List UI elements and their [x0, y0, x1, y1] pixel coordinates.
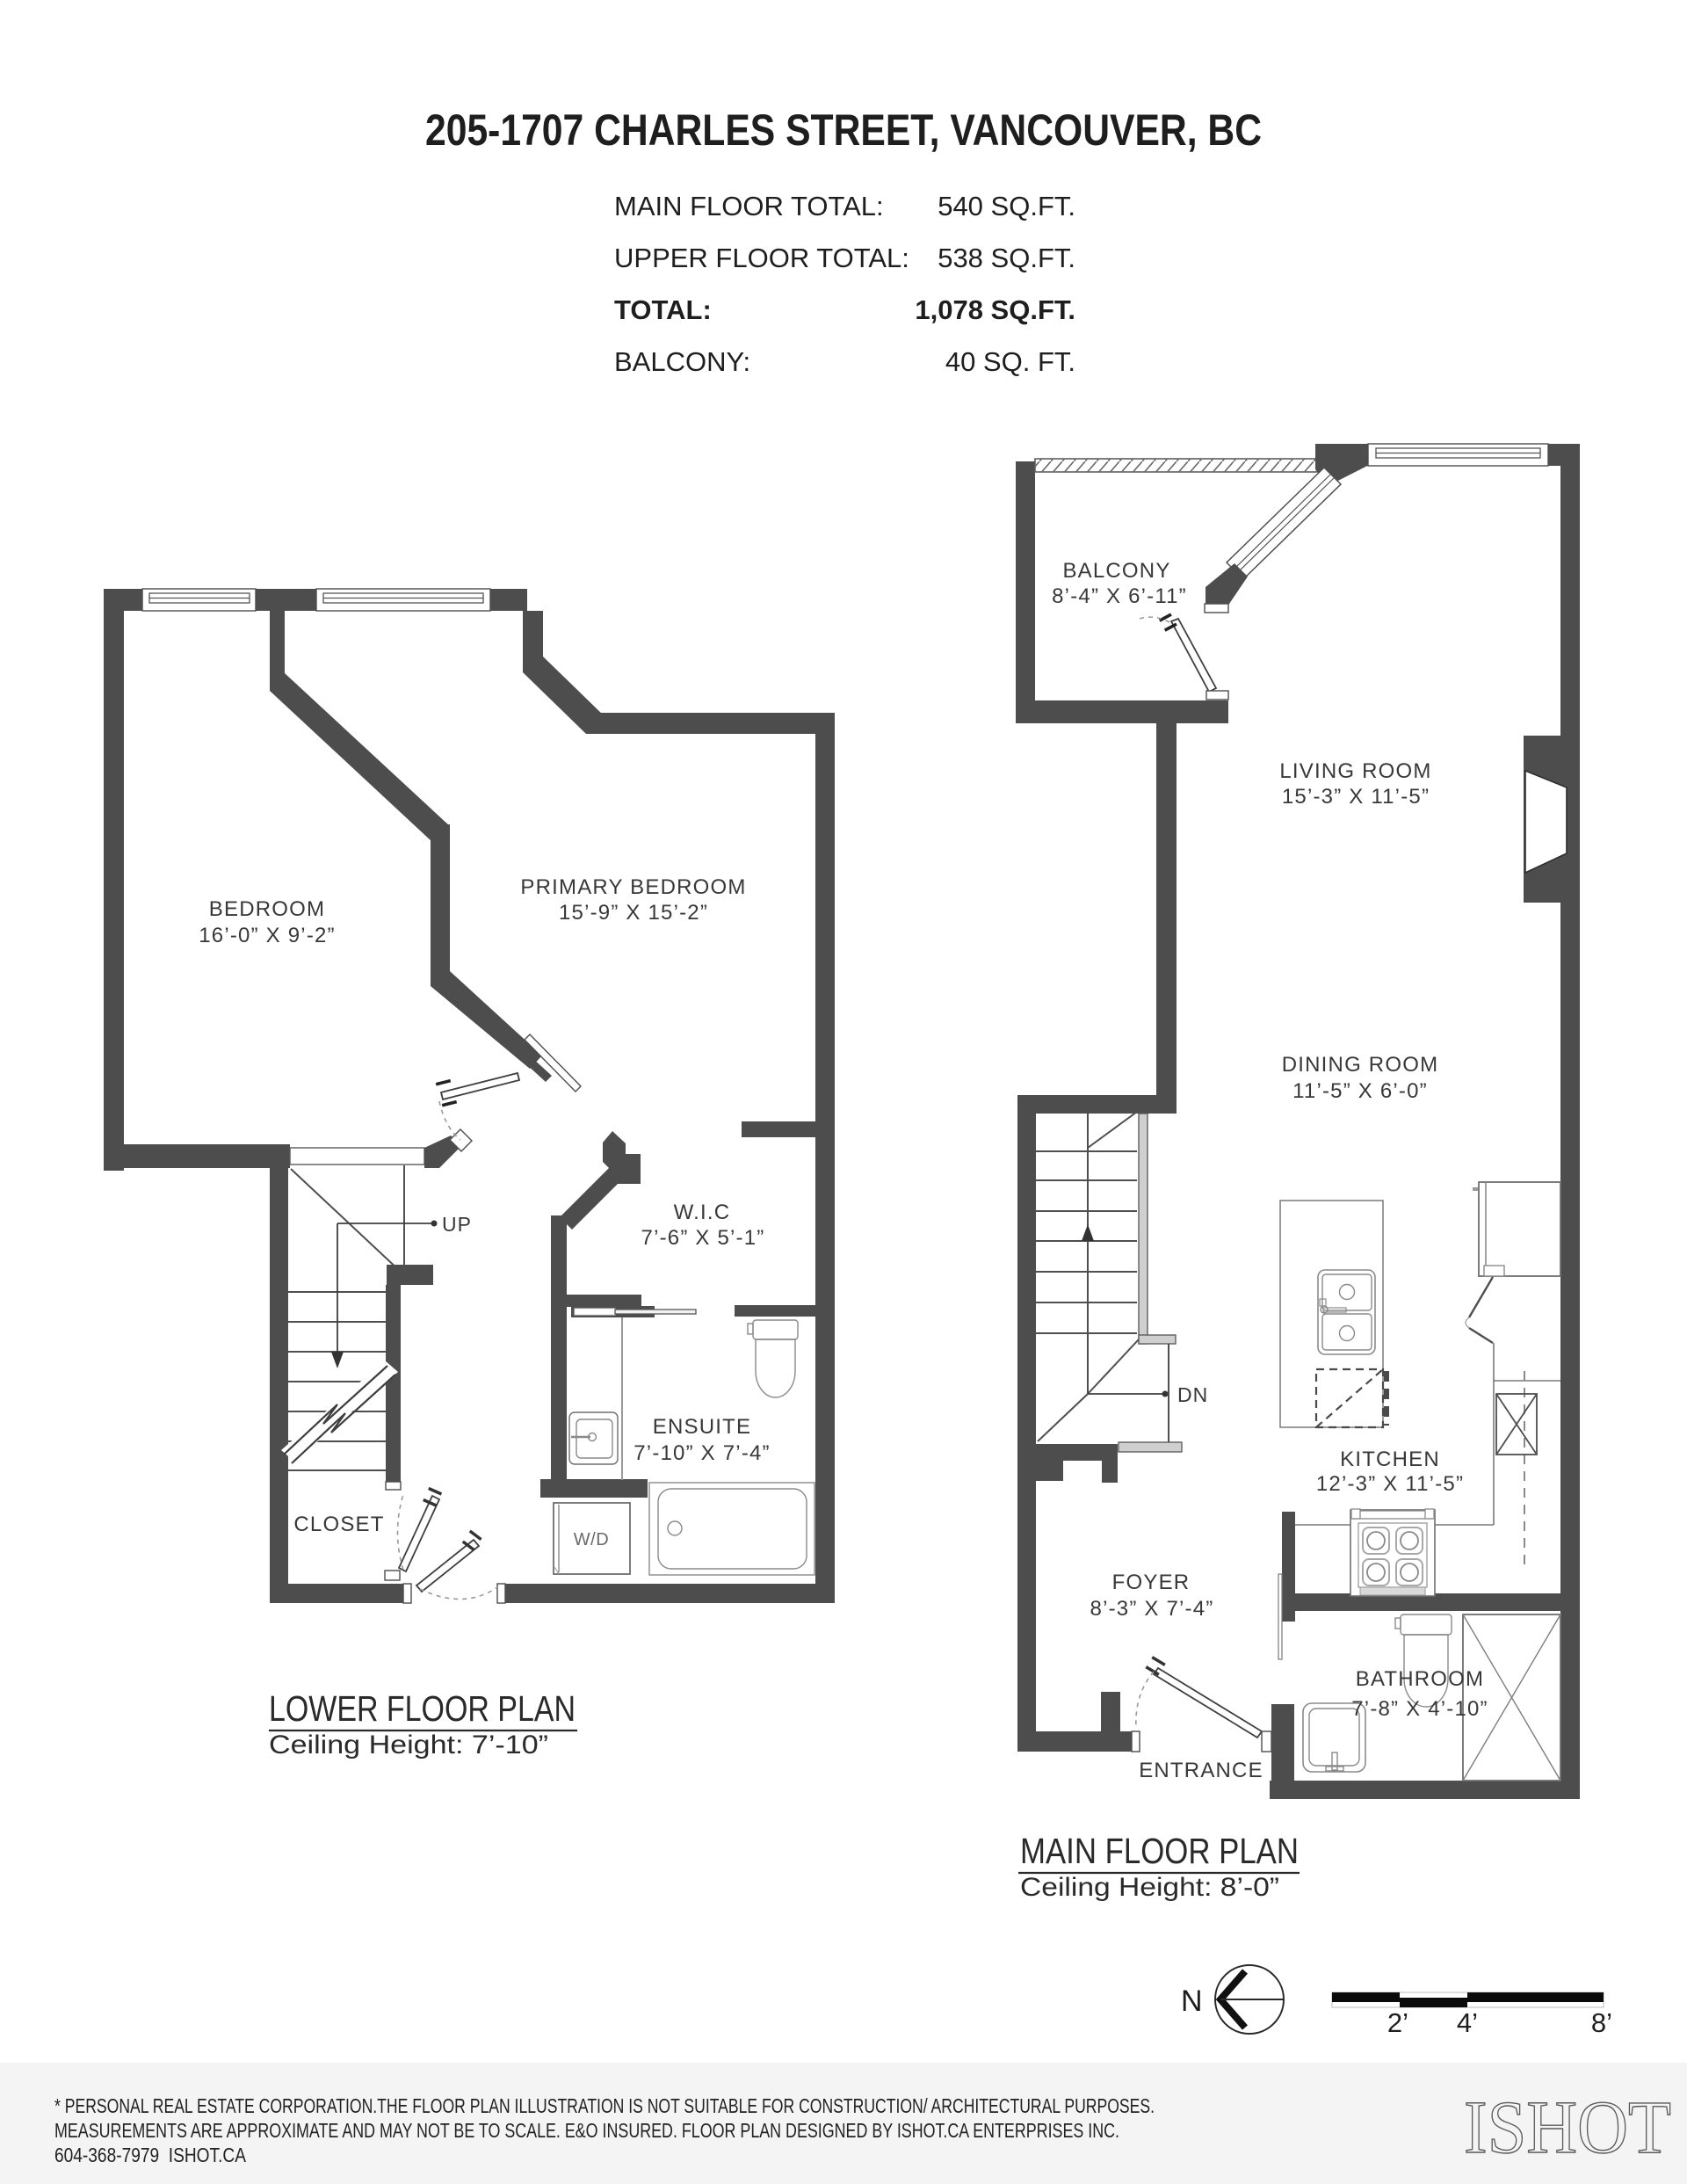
- svg-text:15’-3” X 11’-5”: 15’-3” X 11’-5”: [1282, 785, 1430, 809]
- svg-text:MEASUREMENTS ARE APPROXIMATE A: MEASUREMENTS ARE APPROXIMATE AND MAY NOT…: [54, 2119, 1119, 2142]
- svg-text:2’: 2’: [1387, 2007, 1408, 2038]
- svg-text:16’-0” X 9’-2”: 16’-0” X 9’-2”: [199, 924, 336, 947]
- svg-text:DN: DN: [1177, 1383, 1208, 1406]
- svg-text:N: N: [1181, 1984, 1203, 2018]
- svg-text:538 SQ.FT.: 538 SQ.FT.: [938, 243, 1075, 273]
- svg-text:CLOSET: CLOSET: [293, 1513, 384, 1536]
- svg-text:8’-4” X 6’-11”: 8’-4” X 6’-11”: [1052, 584, 1187, 608]
- svg-text:4’: 4’: [1457, 2007, 1478, 2038]
- svg-text:40 SQ. FT.: 40 SQ. FT.: [945, 346, 1075, 377]
- svg-text:7’-6” X 5’-1”: 7’-6” X 5’-1”: [641, 1226, 765, 1250]
- svg-text:MAIN FLOOR TOTAL:: MAIN FLOOR TOTAL:: [614, 191, 884, 221]
- svg-text:1,078 SQ.FT.: 1,078 SQ.FT.: [915, 294, 1075, 325]
- svg-text:W.I.C: W.I.C: [674, 1201, 731, 1224]
- svg-text:BEDROOM: BEDROOM: [209, 897, 325, 921]
- svg-text:MAIN FLOOR PLAN: MAIN FLOOR PLAN: [1020, 1831, 1299, 1871]
- svg-text:7’-10” X 7’-4”: 7’-10” X 7’-4”: [634, 1441, 771, 1465]
- svg-text:205-1707 CHARLES STREET, VANCO: 205-1707 CHARLES STREET, VANCOUVER, BC: [425, 105, 1262, 155]
- svg-text:ENSUITE: ENSUITE: [653, 1415, 751, 1439]
- svg-text:ENTRANCE: ENTRANCE: [1139, 1759, 1263, 1782]
- svg-text:8’-3” X 7’-4”: 8’-3” X 7’-4”: [1090, 1597, 1214, 1621]
- svg-text:UP: UP: [442, 1213, 472, 1236]
- svg-text:540 SQ.FT.: 540 SQ.FT.: [938, 191, 1075, 221]
- svg-text:PRIMARY BEDROOM: PRIMARY BEDROOM: [520, 875, 746, 899]
- svg-text:LOWER FLOOR PLAN: LOWER FLOOR PLAN: [269, 1688, 576, 1729]
- svg-text:Ceiling Height: 8’-0”: Ceiling Height: 8’-0”: [1020, 1873, 1279, 1902]
- svg-text:8’: 8’: [1591, 2007, 1612, 2038]
- svg-text:11’-5” X 6’-0”: 11’-5” X 6’-0”: [1292, 1079, 1428, 1103]
- svg-text:KITCHEN: KITCHEN: [1340, 1448, 1440, 1471]
- svg-text:TOTAL:: TOTAL:: [614, 294, 712, 325]
- svg-text:DINING ROOM: DINING ROOM: [1282, 1053, 1439, 1077]
- svg-text:604-368-7979 ISHOT.CA: 604-368-7979 ISHOT.CA: [54, 2144, 247, 2166]
- svg-text:12’-3” X 11’-5”: 12’-3” X 11’-5”: [1316, 1472, 1464, 1496]
- svg-text:7’-8” X 4’-10”: 7’-8” X 4’-10”: [1351, 1697, 1488, 1721]
- svg-text:LIVING ROOM: LIVING ROOM: [1279, 759, 1431, 783]
- svg-text:W/D: W/D: [574, 1530, 609, 1549]
- svg-text:15’-9” X 15’-2”: 15’-9” X 15’-2”: [559, 901, 708, 925]
- svg-text:ISHOT: ISHOT: [1464, 2085, 1671, 2169]
- svg-text:FOYER: FOYER: [1112, 1571, 1191, 1594]
- svg-text:UPPER FLOOR TOTAL:: UPPER FLOOR TOTAL:: [614, 243, 909, 273]
- svg-text:BATHROOM: BATHROOM: [1356, 1667, 1485, 1691]
- svg-text:Ceiling Height: 7’-10”: Ceiling Height: 7’-10”: [269, 1731, 548, 1760]
- svg-text:BALCONY:: BALCONY:: [614, 346, 750, 377]
- svg-text:BALCONY: BALCONY: [1062, 559, 1170, 583]
- svg-text:* PERSONAL REAL ESTATE CORPORA: * PERSONAL REAL ESTATE CORPORATION.THE F…: [54, 2094, 1155, 2117]
